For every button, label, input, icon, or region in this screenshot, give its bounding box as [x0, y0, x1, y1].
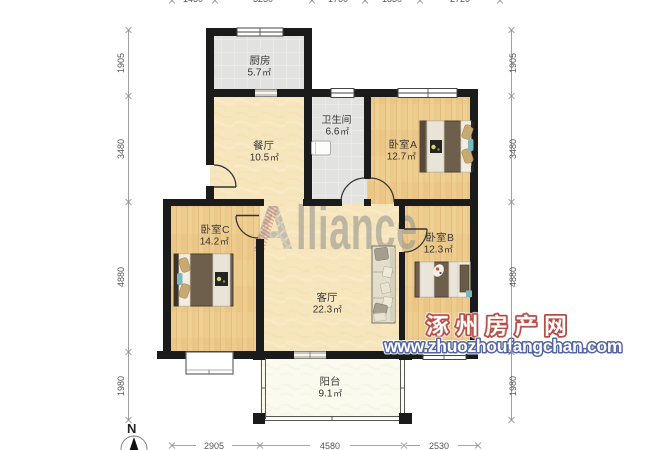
svg-text:4880: 4880 — [508, 267, 518, 287]
svg-text:2720: 2720 — [450, 0, 470, 4]
svg-text:1980: 1980 — [116, 376, 126, 396]
svg-text:12.3: 12.3 — [424, 245, 444, 256]
svg-text:C: C — [222, 224, 230, 236]
svg-text:1830: 1830 — [382, 0, 402, 4]
svg-text:3480: 3480 — [116, 139, 126, 159]
svg-text:3230: 3230 — [253, 0, 273, 4]
svg-text:B: B — [447, 232, 454, 244]
svg-text:4880: 4880 — [116, 267, 126, 287]
svg-text:12.7: 12.7 — [387, 152, 407, 163]
svg-text:4580: 4580 — [320, 441, 340, 450]
svg-text:2905: 2905 — [204, 441, 224, 450]
svg-text:22.3: 22.3 — [313, 305, 333, 316]
svg-text:1980: 1980 — [508, 376, 518, 396]
svg-text:N: N — [127, 421, 136, 436]
svg-text:1905: 1905 — [116, 53, 126, 73]
svg-text:1430: 1430 — [183, 0, 203, 4]
svg-text:9.1: 9.1 — [319, 389, 333, 400]
svg-text:3480: 3480 — [508, 139, 518, 159]
svg-text:2530: 2530 — [429, 441, 449, 450]
svg-text:www.zhuozhoufangchan.com: www.zhuozhoufangchan.com — [383, 336, 622, 356]
svg-text:6.6: 6.6 — [326, 127, 340, 138]
svg-text:10.5: 10.5 — [250, 153, 270, 164]
svg-text:14.2: 14.2 — [200, 237, 220, 248]
svg-text:1905: 1905 — [508, 53, 518, 73]
svg-text:5.7: 5.7 — [248, 68, 262, 79]
svg-text:A: A — [410, 139, 417, 151]
svg-text:1760: 1760 — [328, 0, 348, 4]
